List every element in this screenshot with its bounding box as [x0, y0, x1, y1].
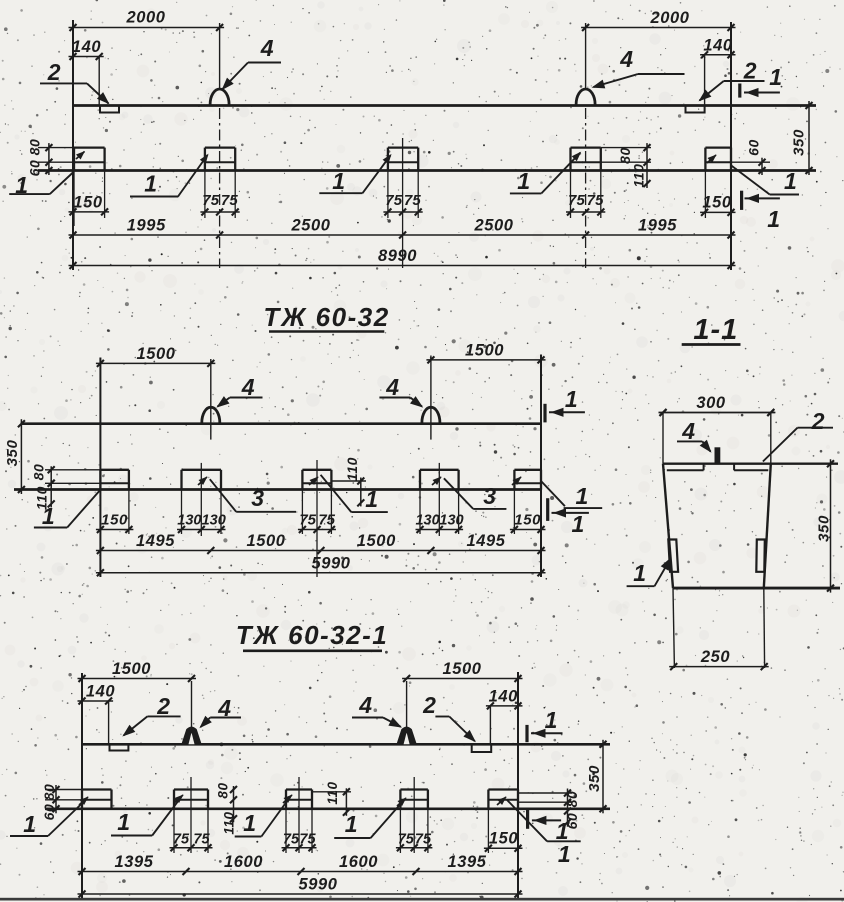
svg-text:1495: 1495 [466, 532, 505, 550]
svg-text:60: 60 [746, 139, 762, 156]
svg-text:1: 1 [144, 171, 157, 197]
svg-text:1: 1 [332, 168, 345, 194]
svg-text:250: 250 [700, 648, 731, 666]
svg-text:4: 4 [260, 35, 274, 61]
svg-text:2500: 2500 [290, 217, 330, 235]
svg-text:75: 75 [193, 832, 210, 848]
svg-text:1: 1 [15, 172, 28, 198]
svg-text:110: 110 [631, 163, 647, 187]
svg-text:ТЖ 60-32: ТЖ 60-32 [263, 302, 389, 332]
svg-text:1500: 1500 [465, 342, 504, 360]
svg-text:350: 350 [586, 765, 603, 792]
svg-text:1: 1 [784, 168, 797, 194]
svg-text:4: 4 [358, 692, 372, 718]
svg-text:130: 130 [177, 513, 201, 529]
svg-text:140: 140 [86, 683, 116, 701]
svg-text:75: 75 [568, 192, 586, 209]
svg-text:1: 1 [345, 811, 358, 837]
svg-text:80: 80 [27, 139, 43, 156]
svg-text:1: 1 [575, 483, 588, 509]
svg-text:75: 75 [587, 192, 605, 209]
svg-text:140: 140 [72, 38, 102, 56]
svg-text:2: 2 [422, 692, 436, 718]
svg-text:1500: 1500 [442, 660, 481, 678]
svg-text:150: 150 [514, 512, 541, 529]
svg-text:80: 80 [617, 147, 633, 164]
svg-text:1: 1 [42, 503, 55, 529]
svg-text:4: 4 [619, 46, 633, 72]
svg-text:1395: 1395 [447, 853, 486, 871]
svg-text:2: 2 [743, 58, 757, 84]
svg-text:75: 75 [299, 512, 316, 529]
svg-text:5990: 5990 [311, 555, 350, 573]
svg-text:130: 130 [439, 513, 463, 529]
svg-text:60: 60 [27, 160, 43, 177]
svg-text:75: 75 [318, 512, 335, 529]
svg-text:3: 3 [251, 485, 264, 511]
svg-text:150: 150 [702, 194, 732, 212]
svg-text:130: 130 [415, 513, 439, 529]
svg-text:1: 1 [767, 206, 780, 232]
svg-text:110: 110 [325, 781, 340, 804]
svg-text:80: 80 [564, 791, 580, 808]
svg-text:2000: 2000 [125, 9, 165, 27]
svg-text:75: 75 [398, 832, 415, 848]
svg-text:1600: 1600 [339, 853, 378, 871]
svg-text:1995: 1995 [127, 217, 166, 235]
svg-text:1: 1 [571, 511, 584, 537]
svg-text:1395: 1395 [114, 853, 153, 871]
svg-text:1: 1 [243, 810, 256, 836]
svg-text:1: 1 [517, 168, 530, 194]
svg-text:5990: 5990 [298, 876, 337, 894]
svg-text:1500: 1500 [136, 345, 175, 363]
svg-text:2000: 2000 [649, 9, 689, 27]
svg-text:75: 75 [283, 832, 300, 848]
svg-text:2500: 2500 [473, 217, 513, 235]
svg-text:75: 75 [385, 192, 403, 209]
svg-text:75: 75 [404, 192, 422, 209]
svg-text:1: 1 [545, 707, 558, 733]
svg-text:1: 1 [23, 811, 36, 837]
svg-text:ТЖ 60-32-1: ТЖ 60-32-1 [236, 620, 388, 650]
svg-text:1500: 1500 [246, 532, 285, 550]
svg-text:1: 1 [769, 64, 782, 90]
svg-text:60: 60 [41, 804, 57, 821]
svg-text:150: 150 [489, 830, 519, 848]
svg-text:110: 110 [222, 811, 237, 834]
svg-text:1: 1 [633, 560, 646, 586]
svg-text:110: 110 [344, 457, 360, 481]
svg-text:4: 4 [385, 374, 399, 400]
svg-text:8990: 8990 [378, 247, 417, 265]
svg-text:2: 2 [47, 59, 61, 85]
svg-text:1: 1 [565, 386, 578, 412]
svg-text:3: 3 [483, 483, 496, 509]
svg-text:140: 140 [489, 688, 519, 706]
svg-text:1: 1 [556, 818, 569, 844]
svg-text:1: 1 [365, 486, 378, 512]
svg-text:1: 1 [117, 809, 130, 835]
svg-text:2: 2 [156, 693, 170, 719]
svg-text:150: 150 [101, 512, 128, 529]
svg-text:150: 150 [73, 194, 103, 212]
svg-text:4: 4 [241, 374, 255, 400]
svg-text:350: 350 [816, 515, 833, 542]
svg-text:140: 140 [703, 37, 733, 55]
svg-text:350: 350 [791, 129, 808, 156]
svg-text:75: 75 [415, 832, 432, 848]
svg-text:1495: 1495 [136, 532, 175, 550]
svg-text:1995: 1995 [638, 217, 677, 235]
svg-text:75: 75 [202, 192, 220, 209]
svg-text:1: 1 [558, 841, 571, 867]
svg-text:80: 80 [31, 464, 47, 481]
svg-text:80: 80 [216, 782, 231, 798]
svg-text:4: 4 [681, 418, 695, 444]
svg-text:75: 75 [173, 832, 190, 848]
svg-text:75: 75 [299, 832, 316, 848]
svg-text:80: 80 [41, 784, 57, 801]
svg-text:75: 75 [221, 192, 239, 209]
svg-text:350: 350 [4, 440, 21, 467]
svg-text:1600: 1600 [224, 853, 263, 871]
svg-text:1500: 1500 [357, 532, 396, 550]
svg-text:130: 130 [202, 513, 226, 529]
svg-text:2: 2 [811, 408, 825, 434]
svg-text:300: 300 [696, 394, 726, 412]
svg-text:1500: 1500 [112, 660, 151, 678]
svg-text:1-1: 1-1 [693, 314, 738, 346]
